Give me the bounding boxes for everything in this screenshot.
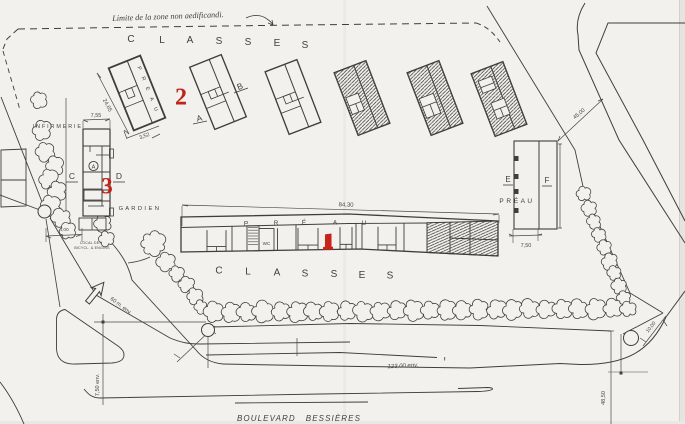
svg-text:S: S (387, 271, 394, 282)
svg-text:2: 2 (175, 85, 187, 111)
svg-text:E: E (359, 270, 366, 281)
svg-text:D: D (116, 171, 122, 181)
svg-text:L: L (245, 267, 251, 278)
svg-text:A: A (187, 35, 194, 46)
svg-text:48,50: 48,50 (601, 391, 607, 405)
svg-text:84,30: 84,30 (338, 202, 354, 209)
svg-text:BICYCL. & ENGINS: BICYCL. & ENGINS (74, 246, 110, 250)
svg-text:7,50 env.: 7,50 env. (95, 373, 101, 396)
svg-text:C: C (215, 266, 222, 277)
svg-text:É: É (302, 218, 306, 227)
svg-text:P: P (244, 221, 248, 228)
svg-text:E: E (505, 175, 510, 184)
svg-text:S: S (331, 269, 338, 280)
svg-text:L: L (159, 35, 165, 46)
svg-text:S: S (302, 269, 309, 280)
svg-text:7,50: 7,50 (521, 243, 532, 249)
svg-text:C: C (69, 171, 75, 181)
svg-text:BOULEVARD BESSIÈRES: BOULEVARD BESSIÈRES (237, 414, 361, 423)
svg-text:I N F I R M E R I E: I N F I R M E R I E (33, 124, 82, 130)
svg-text:7,55: 7,55 (91, 113, 102, 119)
svg-text:G A R D I E N: G A R D I E N (119, 206, 160, 212)
svg-text:R: R (274, 220, 279, 227)
svg-text:WC: WC (263, 241, 271, 246)
svg-text:C: C (127, 34, 134, 45)
svg-text:A: A (333, 220, 338, 227)
svg-text:S: S (302, 40, 309, 51)
svg-text:P R É A U: P R É A U (499, 196, 532, 205)
svg-text:A: A (274, 268, 281, 279)
svg-text:A: A (92, 165, 96, 171)
svg-text:3: 3 (101, 174, 113, 199)
svg-text:S: S (216, 36, 223, 47)
svg-text:LOCAL DES: LOCAL DES (80, 241, 102, 245)
svg-text:4,00: 4,00 (59, 227, 69, 233)
svg-text:S: S (245, 37, 252, 48)
svg-text:U: U (362, 220, 367, 227)
svg-text:F: F (545, 176, 550, 185)
svg-text:E: E (274, 38, 281, 49)
